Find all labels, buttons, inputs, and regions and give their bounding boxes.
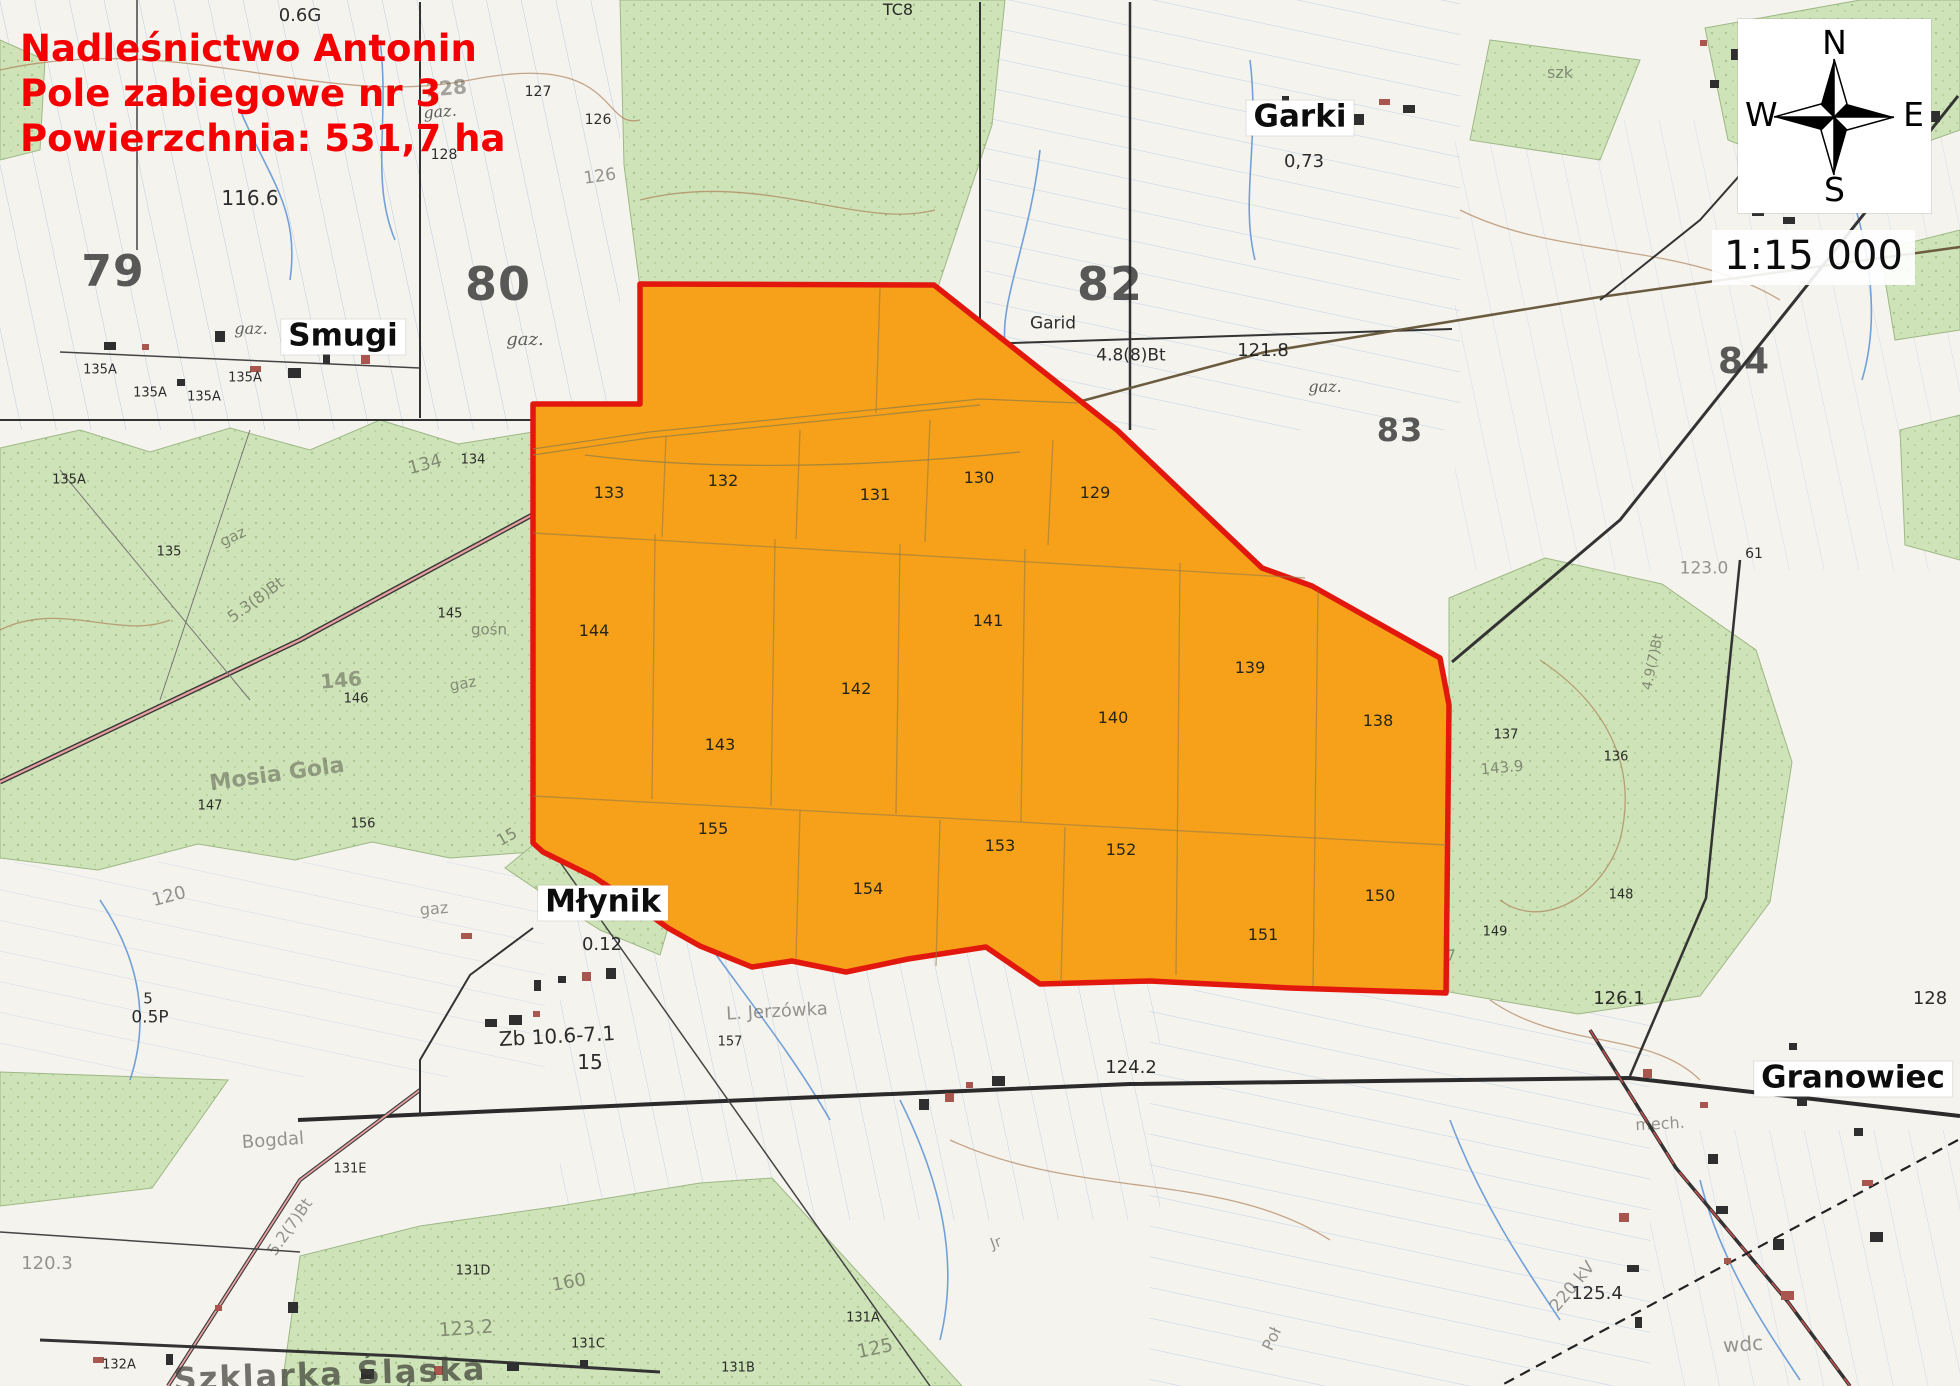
building	[323, 353, 330, 364]
building	[1731, 49, 1738, 60]
building	[1330, 108, 1339, 117]
building	[1783, 217, 1795, 224]
building	[1627, 1265, 1639, 1272]
building	[1281, 117, 1288, 123]
building	[558, 976, 566, 983]
building	[250, 366, 261, 372]
building	[177, 379, 185, 386]
compass-west-label: W	[1745, 95, 1778, 134]
building	[534, 980, 541, 991]
title-area: Powierzchnia: 531,7 ha	[20, 116, 505, 161]
building	[919, 1099, 929, 1110]
building	[992, 1076, 1005, 1086]
building	[1797, 1095, 1807, 1106]
building	[1379, 99, 1390, 105]
building	[1700, 40, 1707, 46]
scale-text: 1:15 000	[1712, 230, 1915, 285]
building	[361, 1369, 374, 1379]
building	[361, 355, 370, 364]
building	[288, 368, 301, 378]
building	[1643, 1069, 1652, 1078]
compass-east-label: E	[1903, 95, 1924, 134]
building	[1635, 1317, 1642, 1328]
building	[485, 1019, 497, 1027]
building	[1724, 1258, 1731, 1264]
compass-south-label: S	[1824, 170, 1845, 209]
building	[1773, 1239, 1784, 1250]
building	[166, 1354, 173, 1365]
building	[1257, 111, 1270, 121]
map-canvas: 0.6GTC8szk128127126gaz.1281260,73116.6ga…	[0, 0, 1960, 1386]
building	[142, 344, 149, 350]
building	[509, 1015, 522, 1025]
title-forest-district: Nadleśnictwo Antonin	[20, 26, 505, 71]
building	[1716, 1206, 1728, 1214]
compass-north-label: N	[1822, 23, 1847, 62]
title-field-number: Pole zabiegowe nr 3	[20, 71, 505, 116]
building	[288, 1302, 298, 1313]
building	[1354, 114, 1364, 125]
building	[582, 972, 591, 981]
title-block: Nadleśnictwo Antonin Pole zabiegowe nr 3…	[20, 26, 505, 161]
building	[1862, 1180, 1873, 1186]
building	[93, 1357, 104, 1363]
building	[1619, 1213, 1629, 1222]
building	[215, 331, 225, 342]
building	[1781, 1291, 1794, 1300]
building	[606, 968, 616, 979]
building	[533, 1011, 540, 1017]
building	[1710, 80, 1719, 88]
building	[1282, 96, 1289, 107]
building	[1708, 1154, 1718, 1164]
building	[104, 342, 116, 350]
building	[507, 1363, 519, 1371]
building	[434, 1366, 443, 1375]
building	[945, 1093, 954, 1102]
building	[461, 933, 472, 939]
building	[1700, 1102, 1708, 1108]
building	[1306, 102, 1314, 109]
building	[1870, 1232, 1883, 1242]
compass-rose: N S W E	[1738, 19, 1931, 213]
building	[1403, 105, 1415, 113]
building	[1846, 1076, 1853, 1086]
building	[966, 1082, 973, 1088]
building	[580, 1360, 588, 1367]
building	[215, 1305, 222, 1311]
building	[1789, 1043, 1797, 1050]
topographic-map-base	[0, 0, 1960, 1386]
building	[1854, 1128, 1863, 1136]
